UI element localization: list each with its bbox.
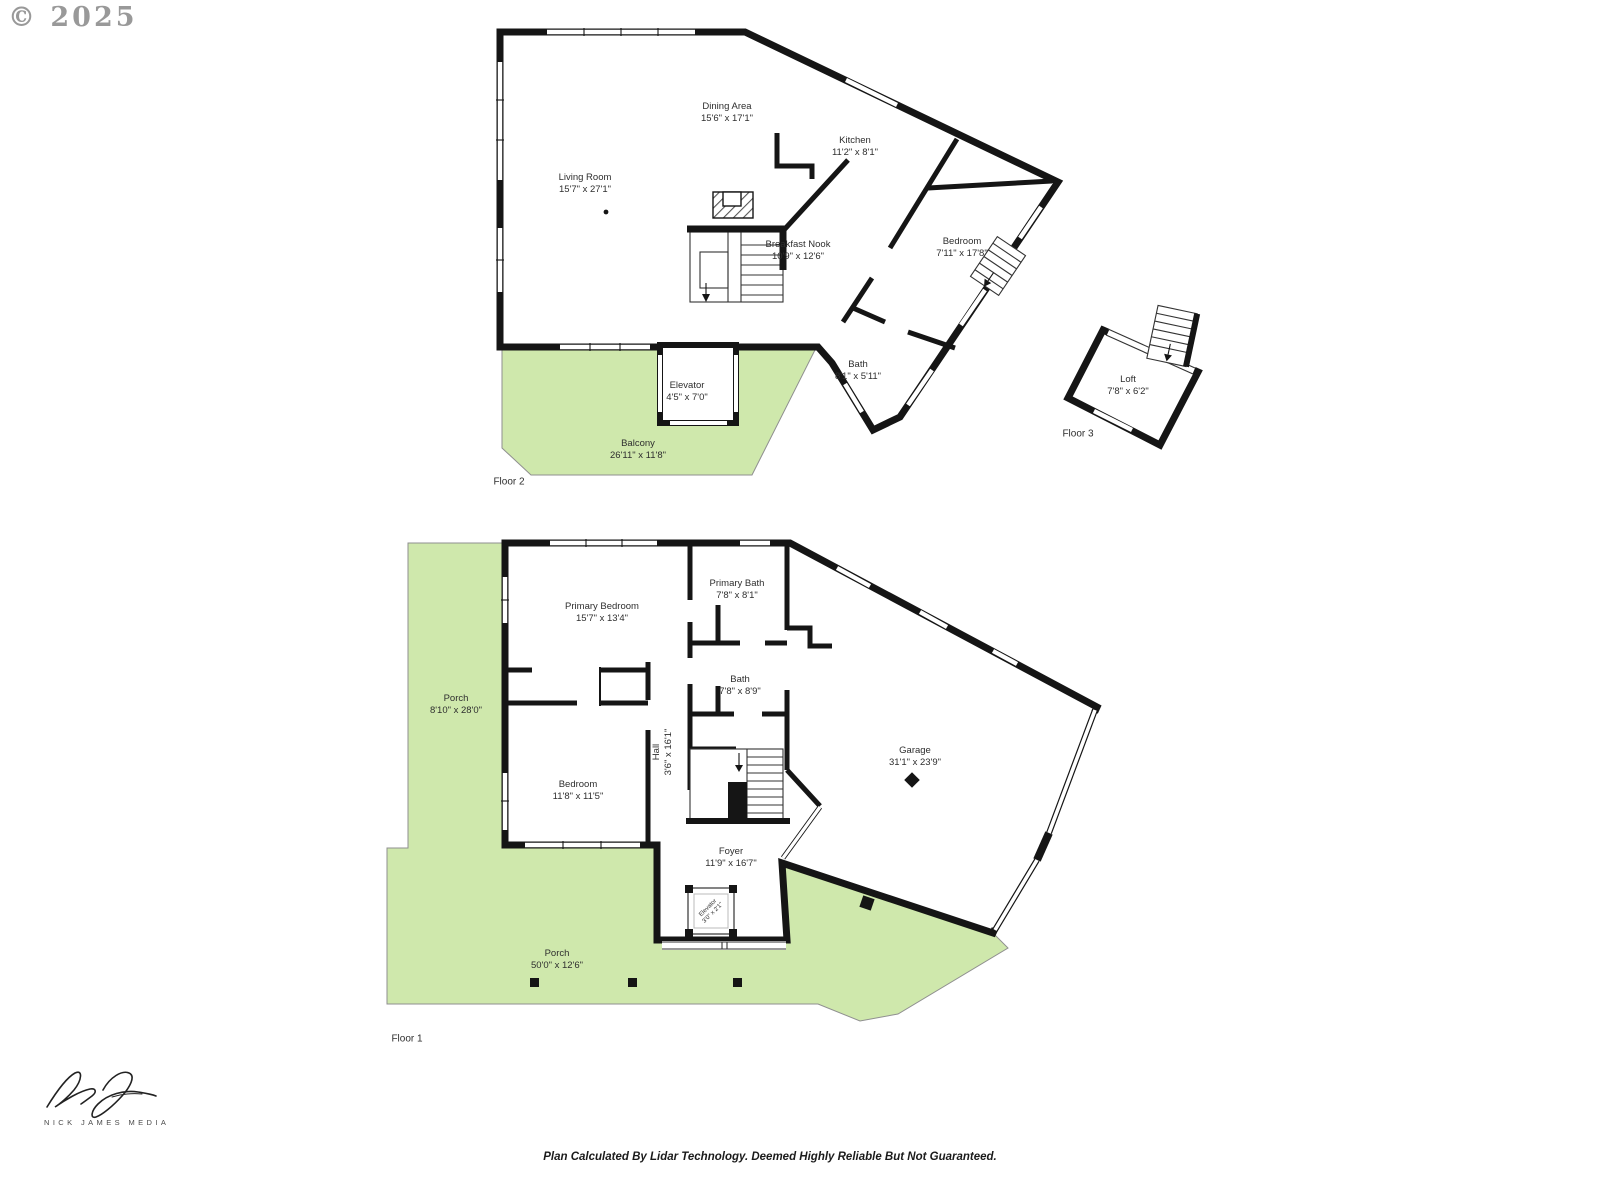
brand-name: NICK JAMES MEDIA bbox=[44, 1118, 169, 1127]
room-dims: 7'11" x 17'8" bbox=[936, 248, 987, 260]
room-name: Primary Bath bbox=[710, 578, 765, 590]
room-label-breakfast-nook: Breakfast Nook 10'9" x 12'6" bbox=[766, 239, 831, 263]
floor1-plan bbox=[387, 539, 1097, 1021]
room-name: Breakfast Nook bbox=[766, 239, 831, 251]
floor-plan-drawing bbox=[0, 0, 1600, 1200]
entry-steps bbox=[662, 941, 786, 950]
room-label-kitchen: Kitchen 11'2" x 8'1" bbox=[832, 135, 878, 159]
room-label-front-porch: Porch 50'0" x 12'6" bbox=[531, 948, 583, 972]
room-label-floor2-elevator: Elevator 4'5" x 7'0" bbox=[666, 380, 708, 404]
room-dims: 26'11" x 11'8" bbox=[610, 450, 666, 462]
loft-stairs bbox=[1147, 305, 1197, 366]
room-label-primary-bath: Primary Bath 7'8" x 8'1" bbox=[710, 578, 765, 602]
room-name: Dining Area bbox=[701, 101, 753, 113]
room-name: Primary Bedroom bbox=[565, 601, 639, 613]
room-name: Bath bbox=[835, 359, 881, 371]
room-label-living-room: Living Room 15'7" x 27'1" bbox=[559, 172, 612, 196]
room-label-garage: Garage 31'1" x 23'9" bbox=[889, 745, 941, 769]
room-dims: 7'8" x 8'1" bbox=[710, 590, 765, 602]
room-label-floor2-bedroom: Bedroom 7'11" x 17'8" bbox=[936, 236, 987, 260]
room-name: Garage bbox=[889, 745, 941, 757]
floor3-caption: Floor 3 bbox=[1062, 429, 1093, 440]
floor1-caption: Floor 1 bbox=[391, 1034, 422, 1045]
room-name: Bedroom bbox=[936, 236, 987, 248]
room-dims: 8'1" x 5'11" bbox=[835, 371, 881, 383]
room-name: Loft bbox=[1107, 374, 1149, 386]
room-label-balcony: Balcony 26'11" x 11'8" bbox=[610, 438, 666, 462]
room-dims: 7'8" x 8'9" bbox=[719, 686, 761, 698]
room-label-side-porch: Porch 8'10" x 28'0" bbox=[430, 693, 482, 717]
room-name: Elevator bbox=[666, 380, 708, 392]
room-name: Porch bbox=[531, 948, 583, 960]
room-name: Living Room bbox=[559, 172, 612, 184]
room-dims: 31'1" x 23'9" bbox=[889, 757, 941, 769]
room-dims: 15'7" x 13'4" bbox=[565, 613, 639, 625]
room-dims: 10'9" x 12'6" bbox=[766, 251, 831, 263]
room-dims: 15'6" x 17'1" bbox=[701, 113, 753, 125]
room-dims: 7'8" x 6'2" bbox=[1107, 386, 1149, 398]
room-dims: 4'5" x 7'0" bbox=[666, 392, 708, 404]
room-name: Bedroom bbox=[553, 779, 604, 791]
room-name: Balcony bbox=[610, 438, 666, 450]
floor2-caption: Floor 2 bbox=[493, 477, 524, 488]
room-name: Bath bbox=[719, 674, 761, 686]
room-dims: 3'6" x 16'1" bbox=[663, 729, 675, 776]
room-name: Hall bbox=[651, 729, 663, 776]
floor1-staircase bbox=[686, 749, 790, 821]
room-dims: 50'0" x 12'6" bbox=[531, 960, 583, 972]
room-dims: 15'7" x 27'1" bbox=[559, 184, 612, 196]
room-dims: 8'10" x 28'0" bbox=[430, 705, 482, 717]
room-name: Foyer bbox=[705, 846, 756, 858]
room-label-floor1-bedroom: Bedroom 11'8" x 11'5" bbox=[553, 779, 604, 803]
room-dims: 11'8" x 11'5" bbox=[553, 791, 604, 803]
camera-dot-marker bbox=[604, 210, 609, 215]
room-label-foyer: Foyer 11'9" x 16'7" bbox=[705, 846, 756, 870]
fireplace bbox=[713, 192, 753, 218]
signature-logo bbox=[47, 1072, 156, 1117]
room-label-floor2-bath: Bath 8'1" x 5'11" bbox=[835, 359, 881, 383]
room-label-floor1-bath: Bath 7'8" x 8'9" bbox=[719, 674, 761, 698]
room-label-loft: Loft 7'8" x 6'2" bbox=[1107, 374, 1149, 398]
floor-plan-canvas: © 2025 bbox=[0, 0, 1600, 1200]
room-label-primary-bedroom: Primary Bedroom 15'7" x 13'4" bbox=[565, 601, 639, 625]
room-name: Kitchen bbox=[832, 135, 878, 147]
room-label-dining-area: Dining Area 15'6" x 17'1" bbox=[701, 101, 753, 125]
disclaimer-text: Plan Calculated By Lidar Technology. Dee… bbox=[543, 1151, 997, 1163]
room-label-hall: Hall 3'6" x 16'1" bbox=[651, 729, 675, 776]
room-dims: 11'9" x 16'7" bbox=[705, 858, 756, 870]
room-dims: 11'2" x 8'1" bbox=[832, 147, 878, 159]
room-name: Porch bbox=[430, 693, 482, 705]
